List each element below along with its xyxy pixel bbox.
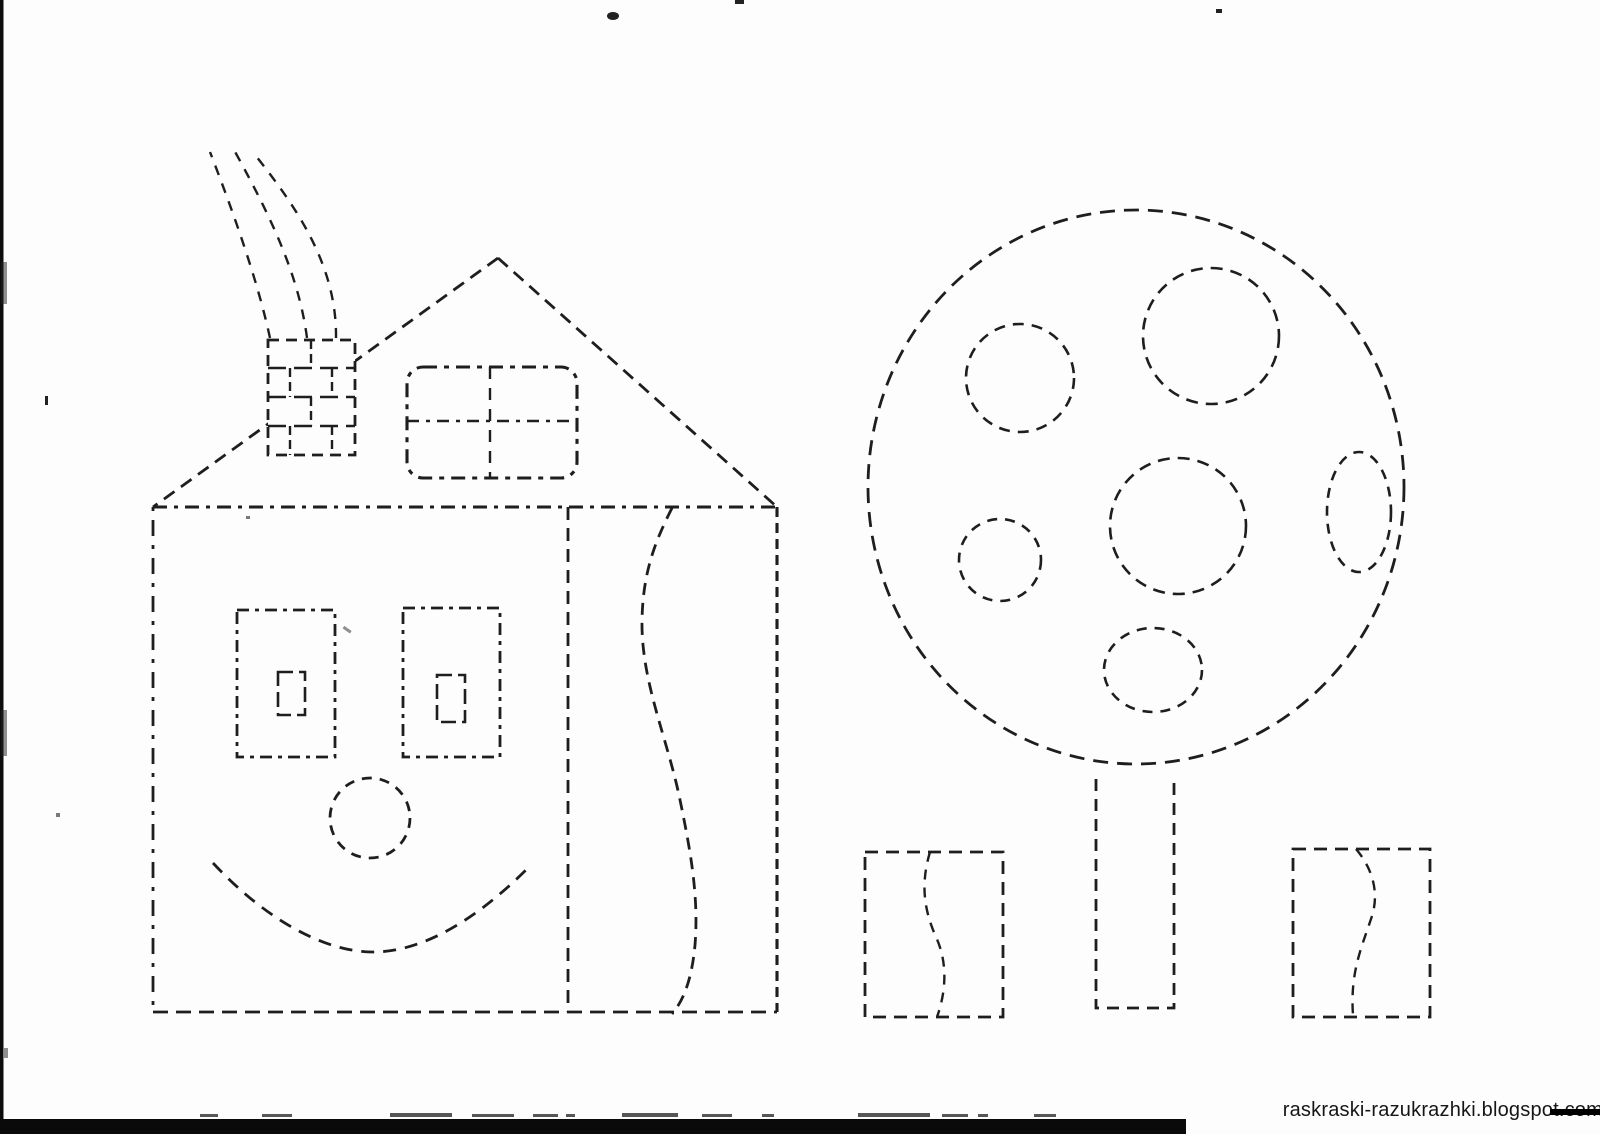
left-window-vent bbox=[278, 672, 305, 715]
attic-window-frame bbox=[407, 367, 577, 478]
tree-crown-outline bbox=[868, 210, 1404, 764]
smoke-curl-icon bbox=[210, 152, 270, 338]
apple-ellipse bbox=[1327, 452, 1391, 572]
tracing-drawing-canvas bbox=[0, 0, 1600, 1134]
right-window-vent bbox=[437, 675, 465, 722]
tree-trunk bbox=[1096, 779, 1174, 1008]
scan-artifacts bbox=[0, 0, 1222, 1134]
smoke-curl-icon bbox=[256, 156, 336, 338]
chimney bbox=[268, 340, 355, 455]
house-body bbox=[153, 507, 777, 1014]
door-wavy-curve bbox=[642, 508, 696, 1014]
left-window-frame bbox=[237, 610, 335, 757]
bush-left bbox=[865, 852, 1003, 1017]
watermark-strikethrough-bar bbox=[1550, 1109, 1600, 1115]
attic-window bbox=[407, 367, 577, 478]
bush-left-wavy-line bbox=[924, 852, 944, 1017]
smoke-curls bbox=[210, 148, 336, 338]
bottom-scan-bar bbox=[0, 1119, 1186, 1134]
apple-circle bbox=[959, 519, 1041, 601]
apple-circle bbox=[1143, 268, 1279, 404]
tree-drawing bbox=[868, 210, 1404, 1008]
tree-apple-circles bbox=[959, 268, 1391, 712]
right-window-frame bbox=[403, 608, 500, 757]
scan-specks bbox=[1, 0, 1222, 1058]
right-window bbox=[403, 608, 500, 757]
apple-circle bbox=[966, 324, 1074, 432]
scan-noise-dashes bbox=[200, 1113, 1056, 1117]
apple-ellipse bbox=[1104, 628, 1202, 712]
nose-circle bbox=[330, 778, 410, 858]
scanned-coloring-page: raskraski-razukrazhki.blogspot.com bbox=[0, 0, 1600, 1134]
left-edge-scan-bar bbox=[0, 0, 4, 1134]
left-window bbox=[237, 610, 335, 757]
bush-right-outline bbox=[1293, 849, 1430, 1017]
bush-left-outline bbox=[865, 852, 1003, 1017]
roof-right-line bbox=[498, 258, 777, 507]
house-drawing bbox=[153, 148, 777, 1014]
bush-right-wavy-line bbox=[1352, 849, 1374, 1015]
bush-right bbox=[1293, 849, 1430, 1017]
apple-circle bbox=[1110, 458, 1246, 594]
smile-curve bbox=[213, 863, 528, 952]
